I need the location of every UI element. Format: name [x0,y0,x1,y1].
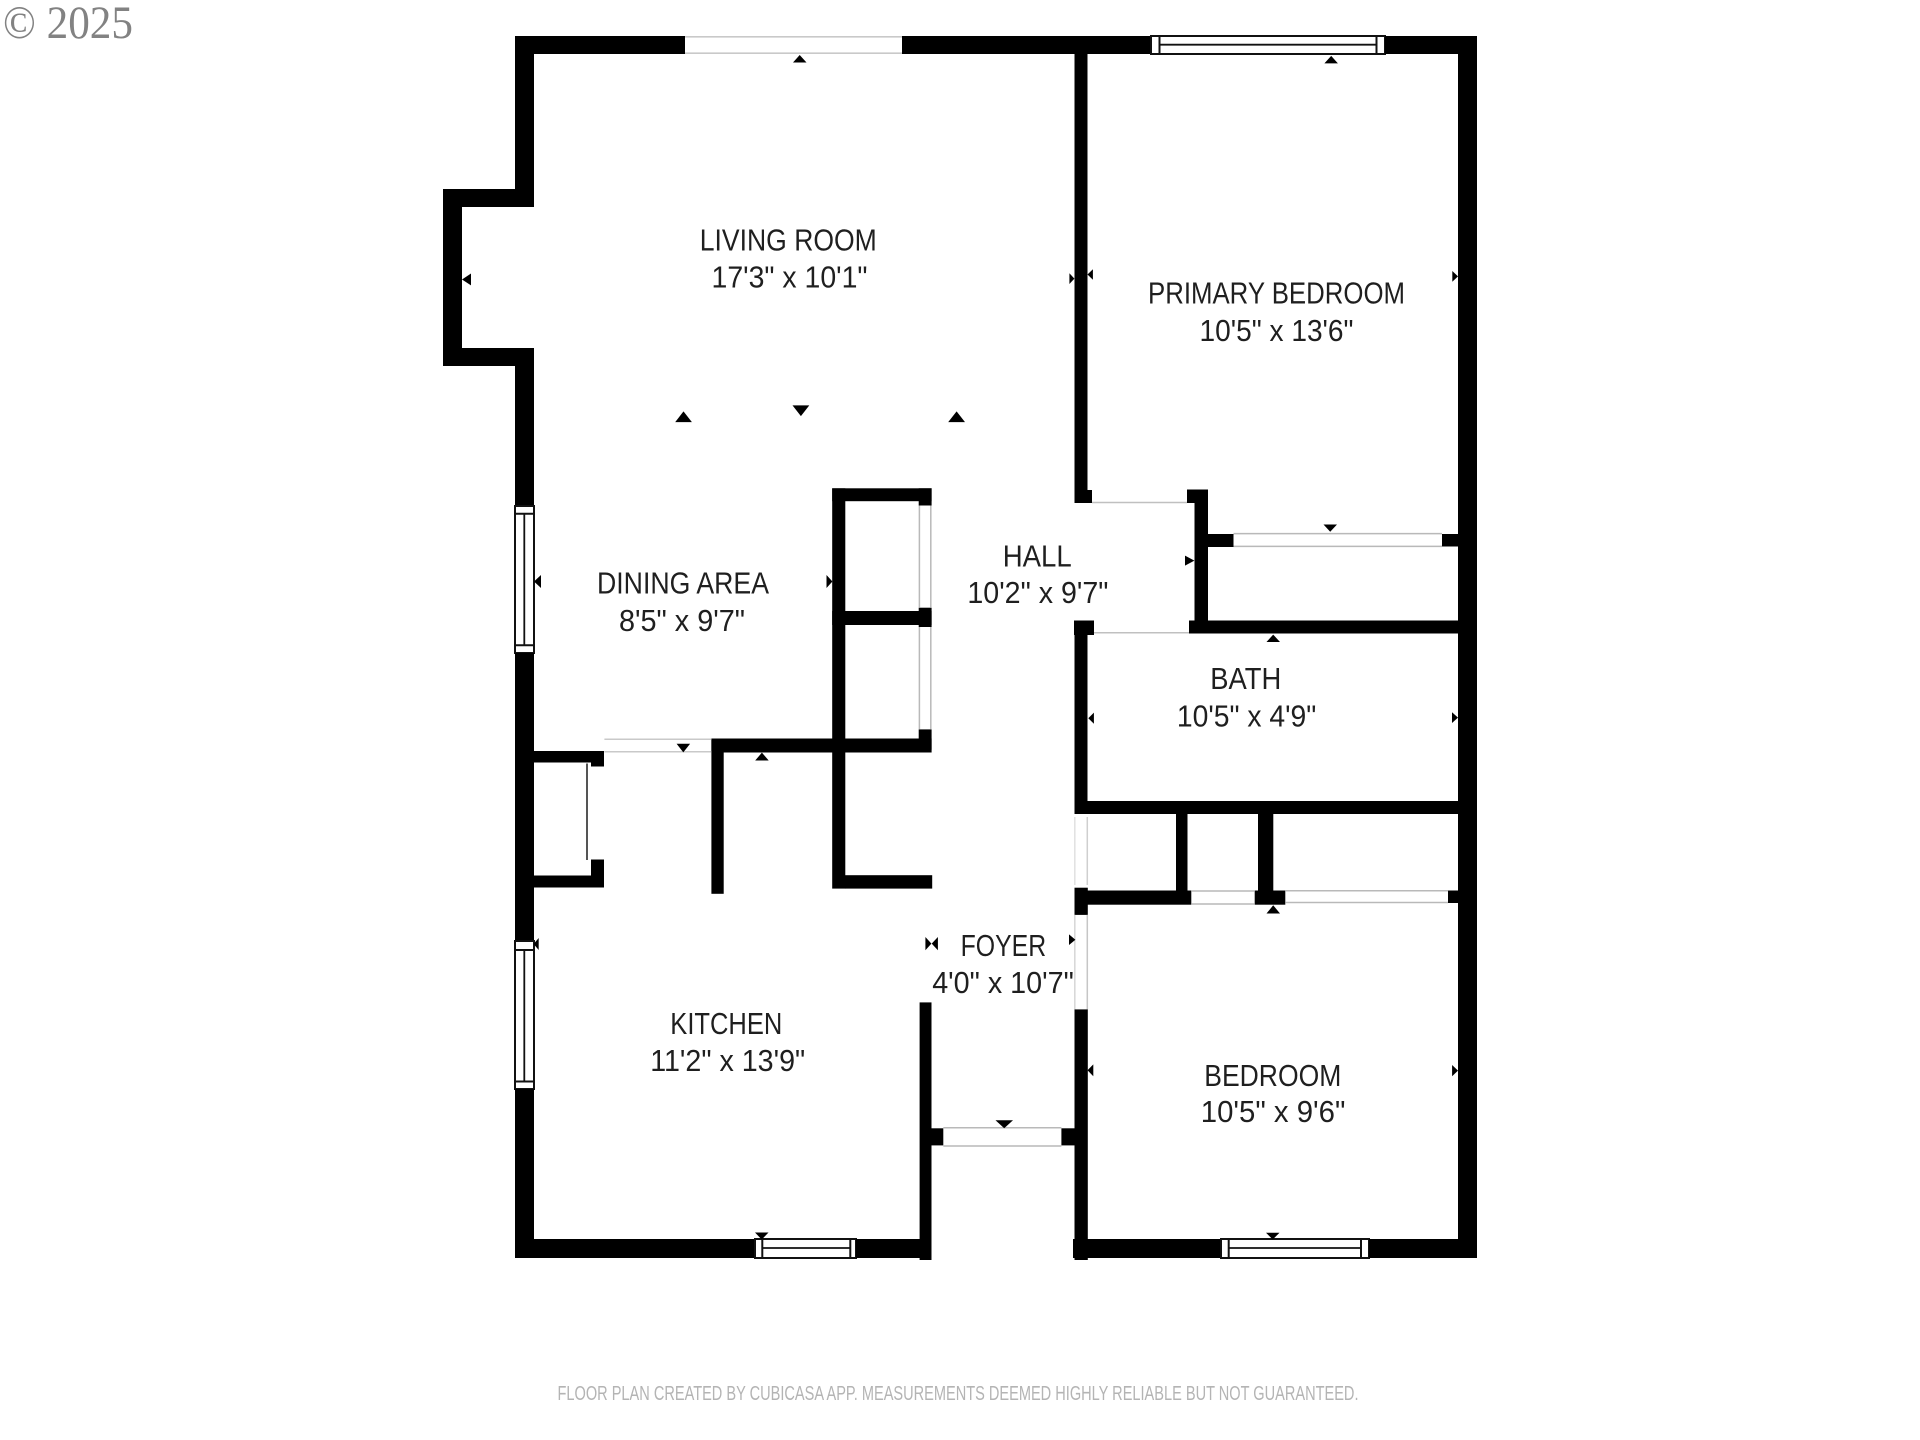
svg-text:FLOOR PLAN CREATED BY CUBICASA: FLOOR PLAN CREATED BY CUBICASA APP. MEAS… [558,1383,1359,1405]
svg-text:BATH: BATH [1210,661,1281,696]
svg-text:10'5" x 9'6": 10'5" x 9'6" [1201,1094,1346,1129]
svg-text:BEDROOM: BEDROOM [1204,1058,1341,1093]
svg-text:HALL: HALL [1003,539,1072,574]
svg-text:PRIMARY BEDROOM: PRIMARY BEDROOM [1148,275,1405,310]
svg-text:17'3" x 10'1": 17'3" x 10'1" [712,260,868,295]
svg-text:8'5" x 9'7": 8'5" x 9'7" [619,603,745,638]
svg-text:10'5" x 13'6": 10'5" x 13'6" [1200,313,1354,348]
svg-text:10'5" x 4'9": 10'5" x 4'9" [1177,698,1317,733]
svg-text:10'2" x 9'7": 10'2" x 9'7" [967,575,1108,610]
svg-text:© 2025: © 2025 [3,0,133,49]
svg-text:LIVING ROOM: LIVING ROOM [700,222,877,257]
svg-text:11'2" x 13'9": 11'2" x 13'9" [650,1043,805,1078]
svg-text:KITCHEN: KITCHEN [670,1006,782,1041]
svg-text:FOYER: FOYER [961,928,1047,963]
svg-text:DINING AREA: DINING AREA [597,565,769,600]
svg-text:4'0" x 10'7": 4'0" x 10'7" [932,965,1074,1000]
